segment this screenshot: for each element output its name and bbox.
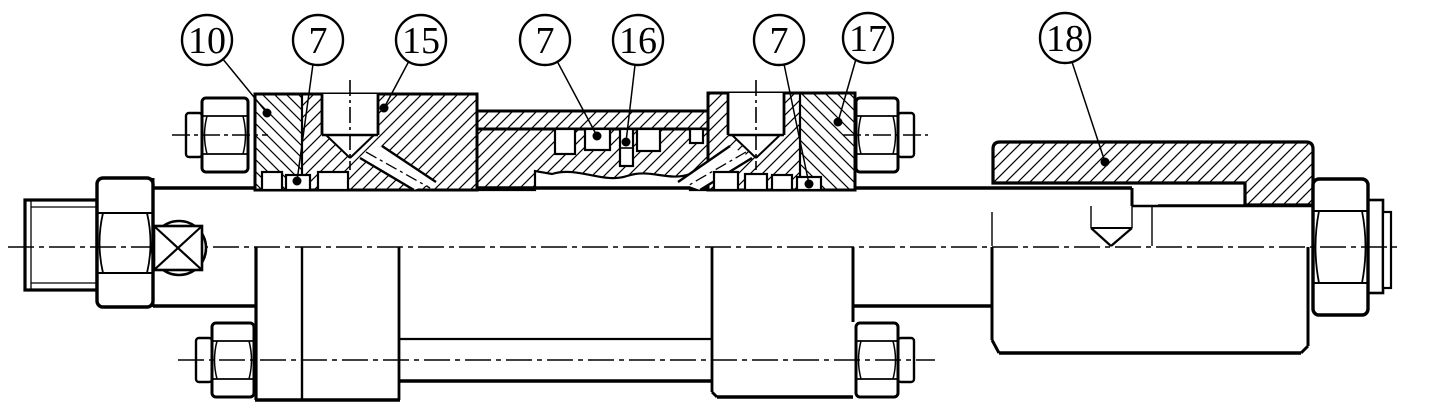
left-gland-housing	[255, 94, 477, 190]
left-rod-nut	[97, 178, 153, 307]
balloon-7-left: 7	[293, 15, 343, 65]
balloon-18: 18	[1040, 13, 1090, 63]
drawing-canvas: 10 7 15 7 16 7 17 18	[0, 0, 1439, 420]
rod-tip	[1383, 212, 1391, 288]
balloon-15: 15	[396, 15, 446, 65]
balloon-label-7-left: 7	[309, 20, 328, 62]
balloon-label-7-right: 7	[770, 20, 789, 62]
dot-7-left	[293, 177, 302, 186]
balloon-7-right: 7	[754, 15, 804, 65]
balloon-label-10: 10	[188, 20, 226, 62]
dot-10	[263, 109, 272, 118]
balloon-17: 17	[843, 13, 893, 63]
gland-seal-grooves	[262, 172, 348, 190]
cross-hole-mark	[152, 221, 206, 275]
dot-15	[380, 104, 389, 113]
balloon-label-18: 18	[1046, 18, 1084, 60]
dot-16	[622, 138, 631, 147]
dot-7-right	[805, 180, 814, 189]
dot-17	[834, 118, 843, 127]
balloon-label-7-mid: 7	[536, 20, 555, 62]
dot-7-mid	[593, 132, 602, 141]
balloon-16: 16	[613, 15, 663, 65]
gland-flange-section	[800, 93, 855, 190]
balloon-label-16: 16	[619, 20, 657, 62]
assembly-section-drawing: 10 7 15 7 16 7 17 18	[0, 0, 1439, 420]
balloon-label-17: 17	[849, 18, 887, 60]
dot-18	[1101, 158, 1110, 167]
balloon-10: 10	[182, 15, 232, 65]
balloon-7-mid: 7	[520, 15, 570, 65]
balloon-label-15: 15	[402, 20, 440, 62]
threaded-rod-end	[25, 200, 97, 290]
